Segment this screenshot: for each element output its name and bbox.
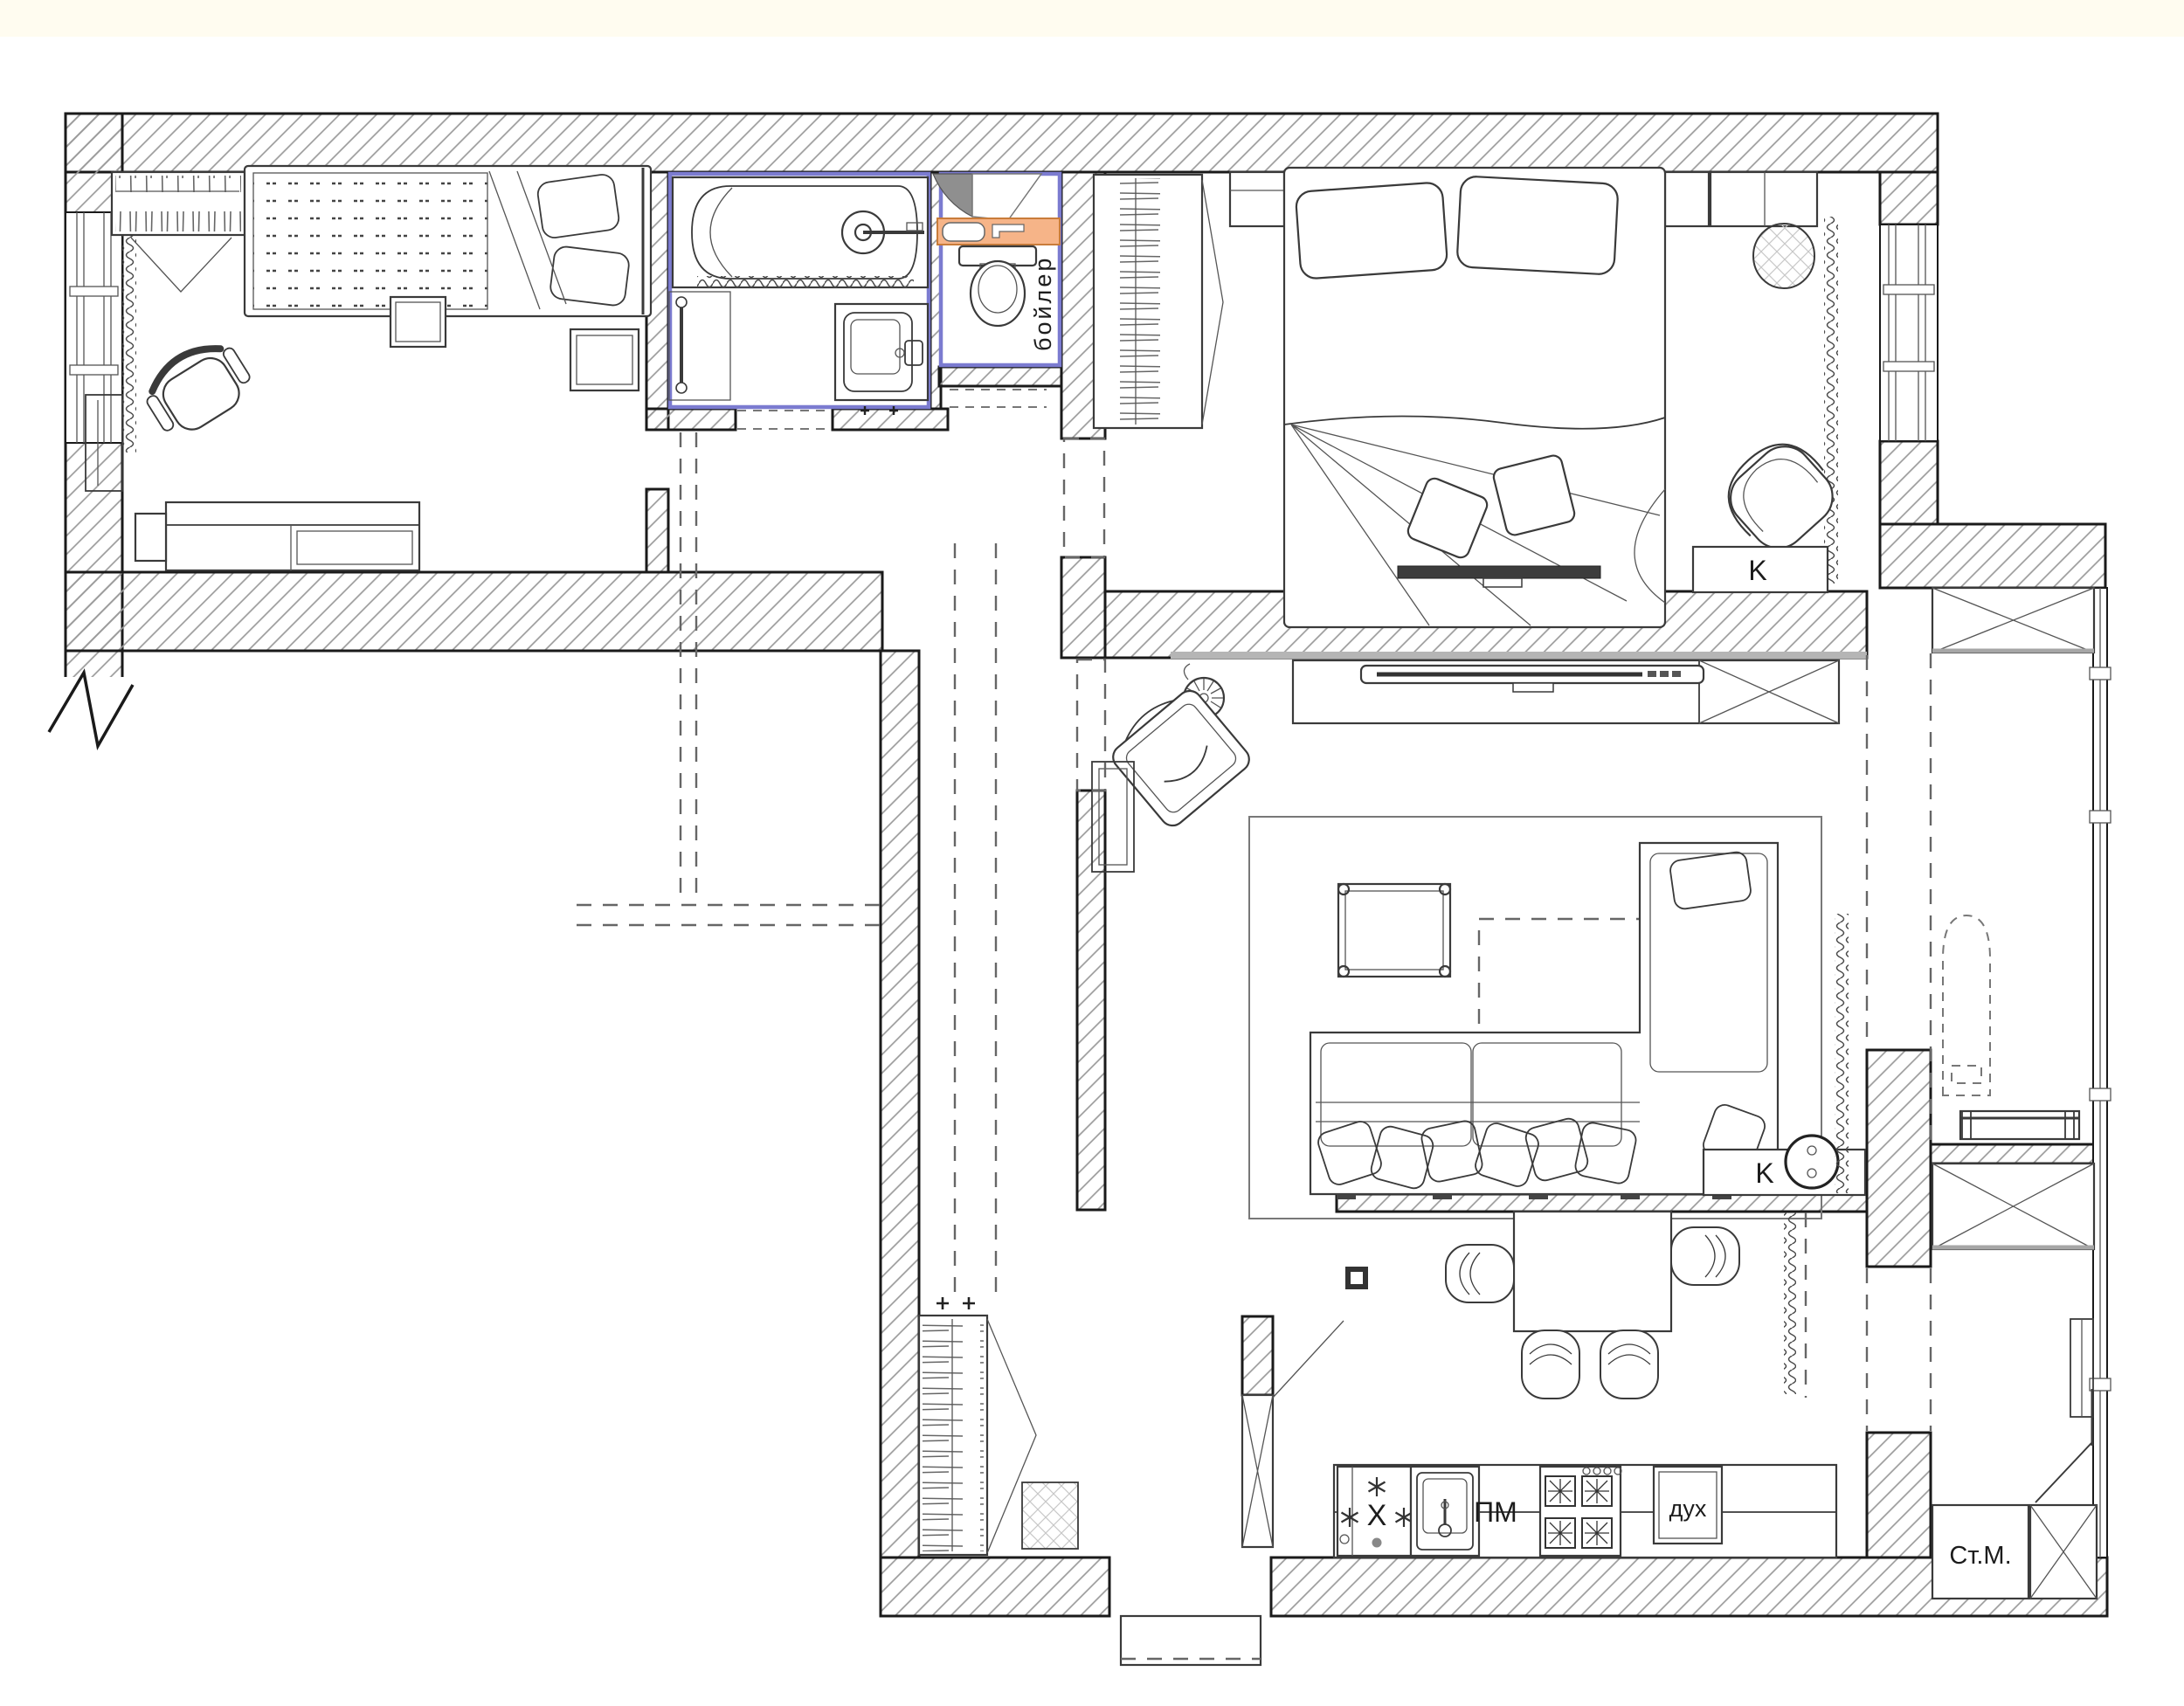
wall-break-mask [51, 677, 136, 747]
boiler-label: бойлер [1030, 256, 1056, 351]
nightstand-left [1230, 172, 1284, 226]
tv-console [1293, 660, 1839, 723]
kitchen-counter: X ПМ [1334, 1465, 1836, 1558]
kitchen-sink [1411, 1467, 1479, 1556]
building-projection [577, 905, 881, 925]
bathtub [673, 177, 928, 288]
washing-machine-label: Ст.М. [1949, 1542, 2011, 1570]
wall-bath-bottom-a [646, 409, 736, 430]
wardrobe-bedroom2 [1094, 175, 1223, 428]
boiler-shelf [937, 218, 1060, 245]
window-bedroom2-right [1880, 224, 1938, 441]
vacuum-k-label: K [1755, 1157, 1773, 1189]
room-kitchen: X ПМ [1334, 1212, 1836, 1558]
vent-duct-icon [972, 174, 1041, 220]
ceiling-projection [955, 543, 996, 1293]
washing-machine: Ст.М. [1932, 1505, 2028, 1599]
fridge-label: X [1367, 1499, 1387, 1532]
living-door-projection [1077, 660, 1105, 791]
oven: дух [1654, 1467, 1722, 1544]
curtain-icon [122, 208, 136, 452]
dining-chair [1446, 1245, 1514, 1302]
bathroom-door-projection [737, 411, 831, 429]
oven-label: дух [1669, 1495, 1707, 1522]
wall-loggia-top [1880, 524, 2105, 588]
room-bedroom2: K [1094, 168, 1847, 627]
radiator-loggia [2070, 1319, 2093, 1417]
dishwasher-label: ПМ [1474, 1496, 1517, 1528]
towel-rail [669, 292, 730, 400]
room-loggia [1932, 588, 2094, 1417]
bedroom-k-label: K [1748, 555, 1766, 586]
sliding-track [1171, 652, 1867, 659]
bedroom2-door-projection [1064, 439, 1104, 557]
wall-bedroom1-door-pier [646, 489, 668, 572]
wc-door-projection [950, 390, 1047, 407]
room-bathroom [669, 174, 929, 429]
water-wave-icon [697, 276, 914, 288]
nightstand-bedroom1 [570, 329, 639, 390]
bed-double [1284, 168, 1665, 627]
desk [135, 502, 419, 570]
loggia-cabinet-mid [1932, 1164, 2094, 1249]
entrance-door [1121, 1616, 1261, 1665]
wall-top [66, 114, 1938, 172]
bedside-table [390, 297, 446, 347]
wall-corridor-left [881, 651, 919, 1558]
bed-single [245, 166, 651, 316]
bench [1960, 1111, 2079, 1139]
dining-table [1514, 1212, 1671, 1331]
ironing-board [1943, 915, 1990, 1095]
walls [49, 114, 2107, 1616]
dining-chair [1671, 1227, 1739, 1285]
utility-cabinet [2030, 1505, 2097, 1599]
dining-chair [1522, 1330, 1579, 1399]
room-living: K [1092, 652, 1931, 1219]
doormat [1022, 1482, 1078, 1549]
wall-bottom-left [881, 1558, 1109, 1616]
robot-vacuum-icon [1786, 1136, 1838, 1188]
wall-kitchen-right-upper [1867, 1050, 1931, 1267]
toilet [959, 246, 1036, 326]
door-swing [2035, 1443, 2091, 1502]
sink-bathroom [835, 304, 928, 415]
pouf-icon [1753, 224, 1814, 288]
wall-bedroom1-bottom [66, 572, 882, 651]
curtain-icon [1824, 217, 1838, 584]
wall-wc-right-lower [1061, 557, 1105, 658]
utility-door-projection [1867, 1268, 1931, 1431]
pillow-icon [1456, 176, 1618, 274]
office-chair-icon [136, 331, 259, 444]
wall-bath-bottom-b [833, 409, 948, 430]
dining-chair [1600, 1330, 1658, 1399]
wall-kitchen-entry-pier [1242, 1316, 1273, 1395]
floor-plan-drawing: бойлер [0, 0, 2184, 1706]
curtain-icon [1835, 914, 1849, 1193]
room-bedroom1 [112, 166, 651, 570]
floor-plan-canvas: бойлер [0, 0, 2184, 1706]
wall-loggia-divider [1931, 1144, 2094, 1164]
wall-right-mid [1880, 441, 1938, 524]
wall-living-left [1077, 791, 1105, 1210]
coffee-table [1338, 884, 1450, 977]
paper-top-band [0, 0, 2184, 37]
wall-wc-bottom [939, 367, 1061, 386]
pillow-icon [1296, 182, 1448, 279]
loggia-cabinet-top [1932, 588, 2094, 653]
dresser [1711, 172, 1817, 226]
stove [1540, 1467, 1621, 1556]
armchair-living [1103, 680, 1254, 830]
ceiling-projection [681, 432, 696, 904]
curtain-icon [1784, 1212, 1796, 1394]
fridge: X [1337, 1467, 1413, 1556]
wall-living-kitchen [1337, 1194, 1867, 1212]
wall-right-upper [1880, 172, 1938, 224]
wardrobe-hall [919, 1297, 1036, 1555]
wall-kitchen-right-lower [1867, 1433, 1931, 1558]
nightstand-right [1665, 172, 1709, 226]
